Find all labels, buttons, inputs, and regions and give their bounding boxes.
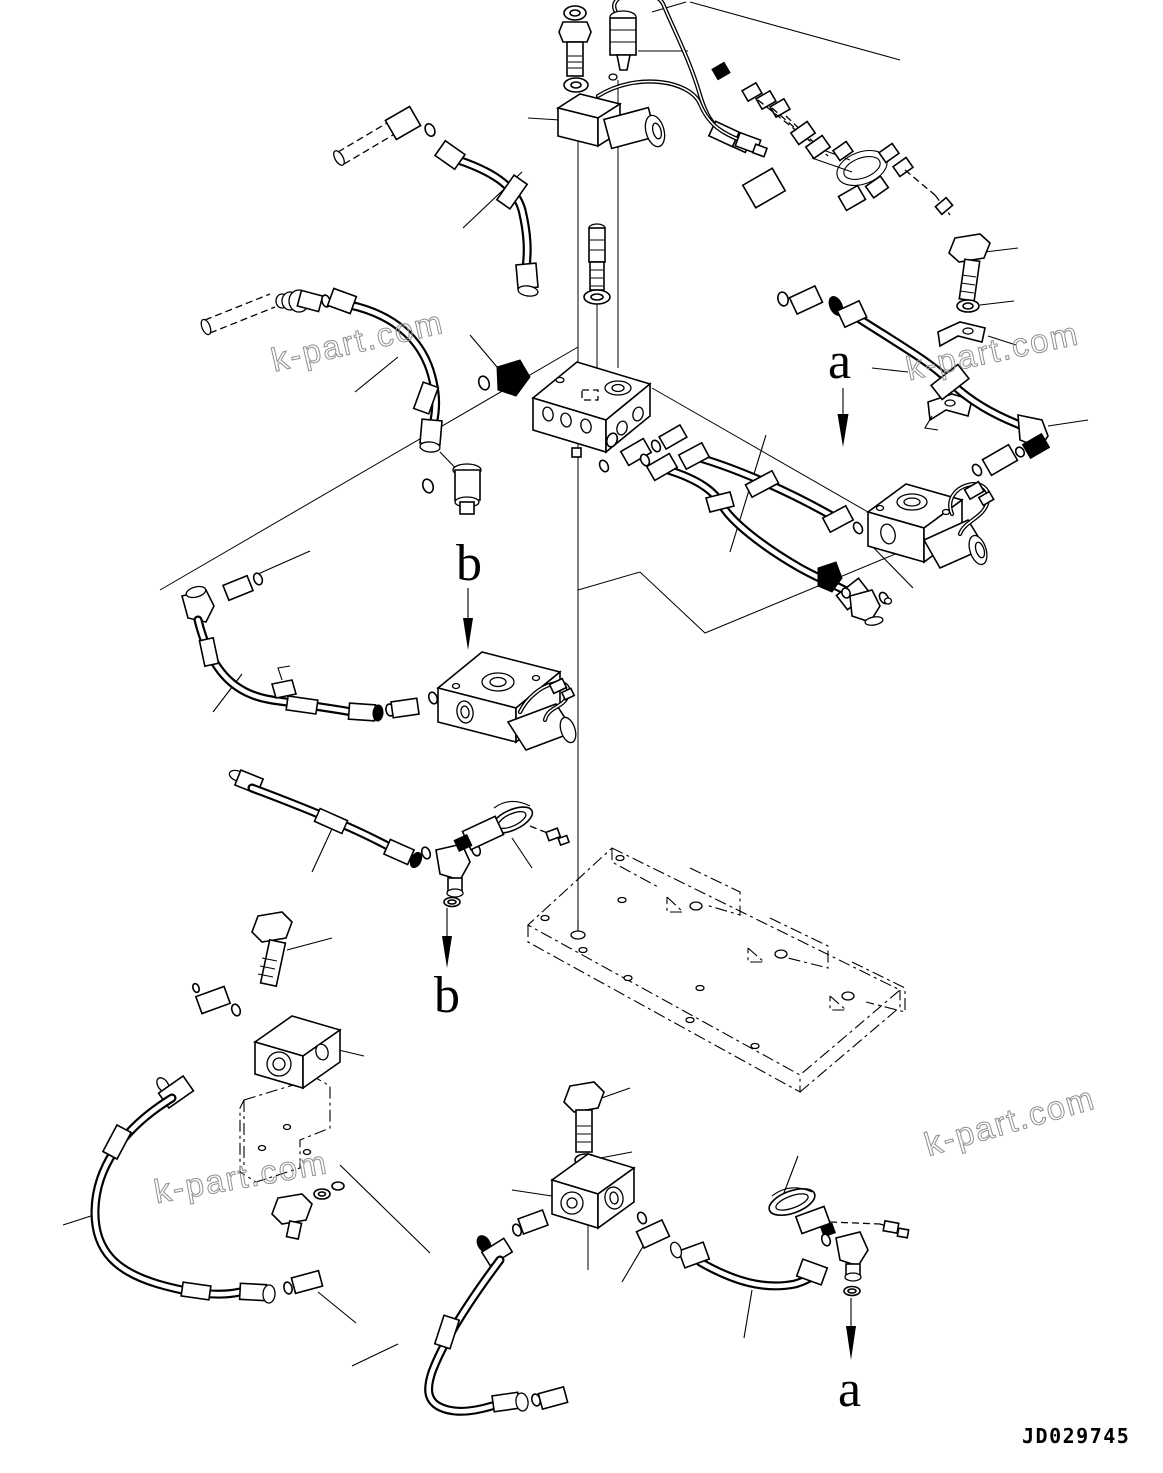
callout-b-bottom-label: b (434, 967, 460, 1024)
callout-b-middle-label: b (456, 535, 482, 592)
elbow-fitting-bottom-right (820, 1232, 868, 1296)
mounting-plate-phantom (528, 848, 905, 1092)
callout-b-middle: b (456, 535, 482, 650)
solenoid-valve-top (558, 82, 767, 157)
valve-block-left (255, 1016, 340, 1088)
callout-a-top: a (828, 333, 851, 447)
hose-bottom-center (429, 1233, 568, 1412)
pressure-switch-bottom (766, 1183, 909, 1237)
bolt-left (252, 912, 292, 986)
callout-a-top-label: a (828, 333, 851, 390)
drawing-number: JD029745 (1022, 1424, 1130, 1448)
twin-hoses-center (639, 443, 891, 615)
hose-bottom-right (669, 1241, 828, 1286)
hose-lower-left (228, 768, 424, 869)
callout-b-bottom: b (434, 908, 460, 1024)
manifold-block (421, 360, 687, 514)
parts-diagram-page: a b (0, 0, 1163, 1473)
watermark-top-right: k-part.com (903, 314, 1083, 387)
valve-block-right (818, 434, 1050, 627)
fittings-left (192, 983, 242, 1017)
valve-assembly-bottom (511, 1082, 669, 1248)
hose-middle-left (182, 572, 419, 721)
bolt-top (559, 6, 591, 92)
hose-top-left (435, 141, 539, 298)
elbow-fitting-middle (420, 843, 482, 907)
stud-bolt-center (584, 224, 610, 304)
bolt-right (949, 234, 990, 312)
watermark-bottom-right: k-part.com (920, 1079, 1099, 1163)
tube-stub-left (199, 290, 331, 336)
callout-a-bottom: a (838, 1298, 861, 1418)
valve-block-b (427, 652, 578, 750)
tube-stub-top-left (332, 106, 437, 166)
pressure-switch-middle (454, 801, 569, 851)
watermark-top-left: k-part.com (268, 303, 448, 379)
callout-a-bottom-label: a (838, 1361, 861, 1418)
